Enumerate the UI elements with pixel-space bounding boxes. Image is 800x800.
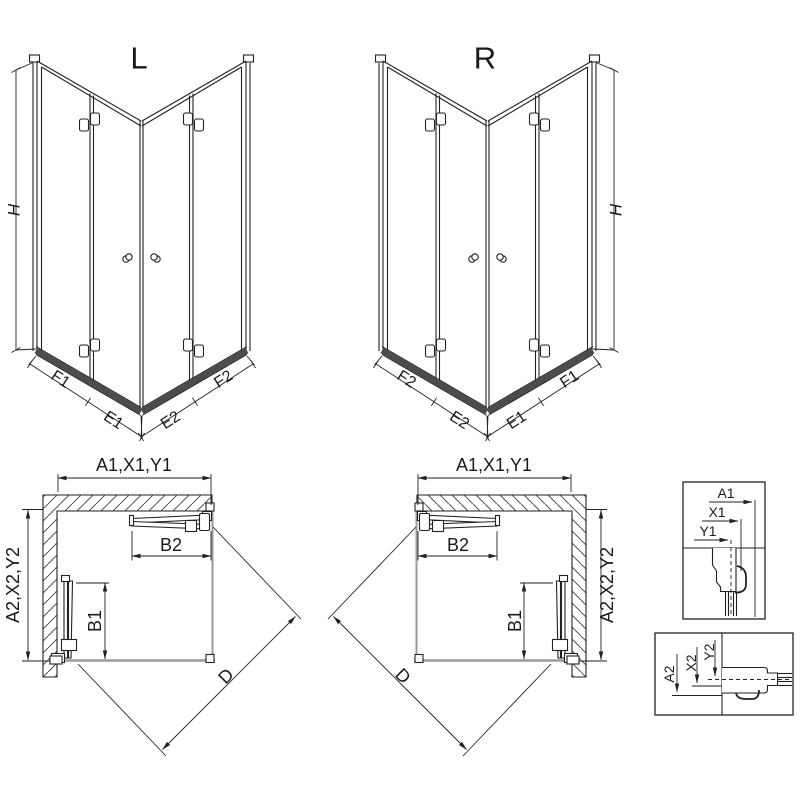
plan-right-width-label: A1,X1,Y1 bbox=[456, 456, 532, 474]
plan-left-depth-label: A2,X2,Y2 bbox=[4, 547, 22, 623]
iso-left-title: L bbox=[130, 43, 147, 74]
detail-bottom-label-x2: X2 bbox=[684, 654, 698, 671]
plan-left-b1-label: B1 bbox=[86, 610, 104, 632]
iso-right-title: R bbox=[474, 43, 496, 74]
dim-label-h-left: H bbox=[6, 204, 23, 216]
plan-right-b2-label: B2 bbox=[447, 536, 469, 554]
detail-bottom-label-a2: A2 bbox=[662, 665, 676, 682]
technical-drawing-page: L H F1 E1 E2 F2 R H F2 E2 E1 F1 A1,X1,Y1… bbox=[0, 0, 800, 800]
detail-bottom-label-y2: Y2 bbox=[702, 643, 716, 660]
detail-top-label-y1: Y1 bbox=[699, 524, 716, 538]
dim-label-h-right: H bbox=[608, 204, 625, 216]
plan-right-depth-label: A2,X2,Y2 bbox=[598, 547, 616, 623]
plan-right-b1-label: B1 bbox=[506, 610, 524, 632]
detail-top-label-a1: A1 bbox=[717, 486, 734, 500]
plan-left-width-label: A1,X1,Y1 bbox=[96, 456, 172, 474]
plan-view-right bbox=[328, 474, 607, 756]
plan-left-b2-label: B2 bbox=[160, 536, 182, 554]
detail-top-label-x1: X1 bbox=[708, 505, 725, 519]
plan-view-left bbox=[22, 474, 301, 756]
detail-view-top bbox=[683, 482, 765, 619]
